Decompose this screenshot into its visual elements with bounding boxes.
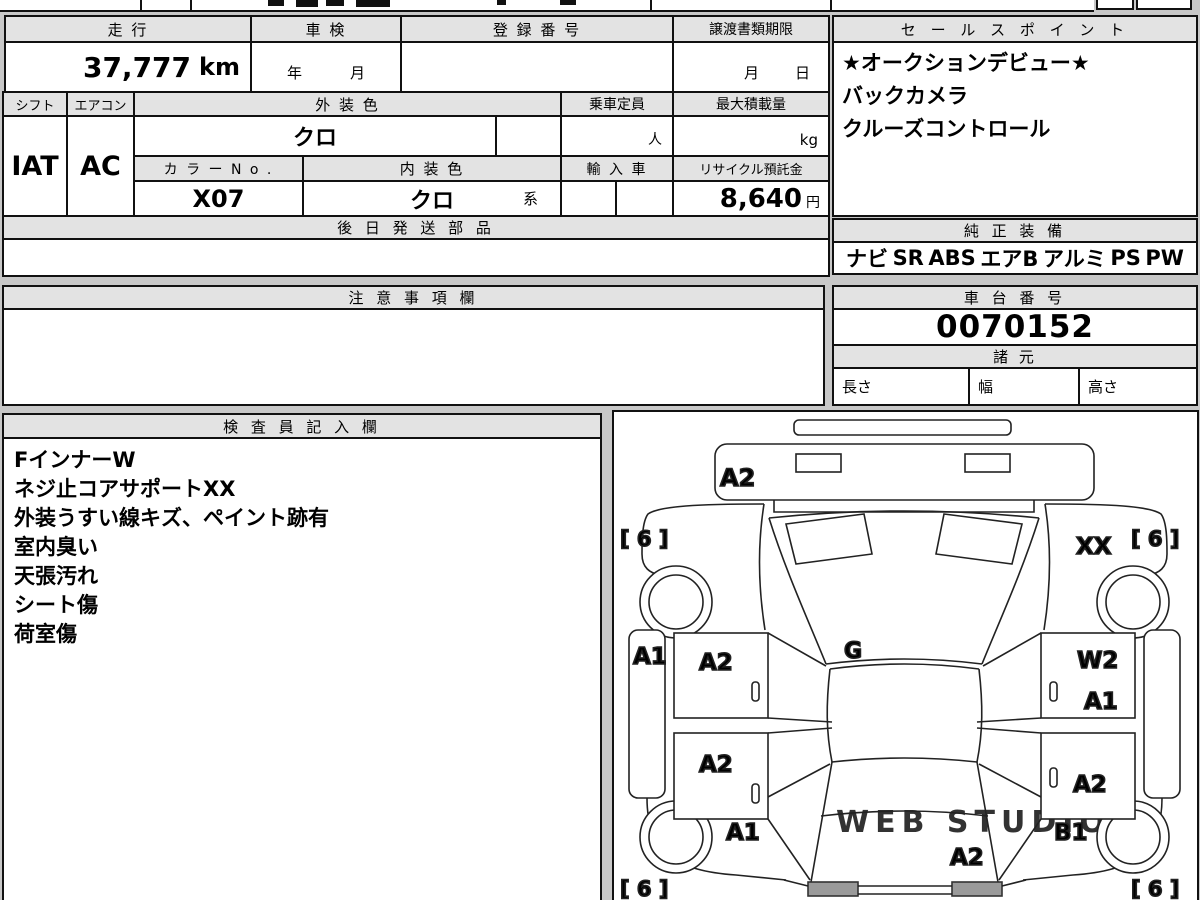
- interior-color-suffix: 系: [523, 188, 538, 209]
- clipped-divider: [190, 0, 192, 10]
- import-header: 輸 入 車: [560, 155, 674, 182]
- front-right-fender-inner: [1044, 504, 1049, 630]
- clipped-divider: [650, 0, 652, 10]
- wiper-left: [786, 514, 872, 564]
- transfer-value-cell: 月 日: [672, 41, 830, 93]
- clipped-text-fragment: [560, 0, 576, 5]
- transfer-month-label: 月: [744, 62, 759, 83]
- right-front-door-lower-label: A1: [1084, 689, 1118, 715]
- car-diagram-box: WEB STUDIO: [612, 410, 1199, 900]
- mileage-value-cell: 37,777 km: [4, 41, 252, 93]
- inspector-line: 室内臭い: [14, 533, 590, 562]
- clipped-divider: [830, 0, 832, 10]
- inspector-line: 外装うすい線キズ、ペイント跡有: [14, 504, 590, 533]
- front-bumper-detail-left: [796, 454, 841, 472]
- interior-color-value: クロ: [410, 183, 454, 215]
- left-side-strip-label: A1: [633, 644, 667, 670]
- clipped-text-fragment: [268, 0, 284, 6]
- capacity-unit: 人: [648, 129, 662, 149]
- inspection-month-label: 月: [350, 62, 365, 83]
- wiper-right: [936, 514, 1022, 564]
- sales-points-header: セ ー ル ス ポ イ ン ト: [832, 15, 1198, 43]
- sales-point-item: ★オークションデビュー★: [842, 47, 1188, 80]
- front-left-fender-inner: [760, 504, 765, 630]
- front-bumper: [715, 444, 1094, 500]
- import-cell-2: [615, 180, 674, 217]
- windshield-label: G: [844, 639, 862, 664]
- max-load-header: 最大積載量: [672, 91, 830, 117]
- specs-header: 諸 元: [832, 344, 1198, 369]
- exterior-color-header: 外 装 色: [133, 91, 562, 117]
- left-rear-door-label: A2: [699, 752, 733, 778]
- color-no-value: X07: [133, 180, 304, 217]
- capacity-value-cell: 人: [560, 115, 674, 157]
- b-pillar-band: [768, 718, 1041, 733]
- later-parts-header: 後 日 発 送 部 品: [2, 215, 830, 240]
- rear-left-tire-label: [ 6 ]: [620, 877, 668, 900]
- sales-point-item: バックカメラ: [842, 80, 1188, 113]
- front-left-tire-label: [ 6 ]: [620, 527, 668, 551]
- left-front-door-label: A2: [699, 650, 733, 676]
- inspector-line: 天張汚れ: [14, 562, 590, 591]
- recycle-value-cell: 8,640 円: [672, 180, 830, 217]
- inspector-body: FインナーW ネジ止コアサポートXX 外装うすい線キズ、ペイント跡有 室内臭い …: [2, 437, 602, 900]
- inspector-header: 検 査 員 記 入 欄: [2, 413, 602, 439]
- genuine-equipment-body: ナビ SR ABS エアB アルミ PS PW: [832, 241, 1198, 275]
- clipped-divider: [140, 0, 142, 10]
- clipped-cell: [1136, 0, 1192, 10]
- interior-color-header: 内 装 色: [302, 155, 562, 182]
- right-side-strip: [1144, 630, 1180, 798]
- aircon-header: エアコン: [66, 91, 135, 117]
- aircon-value: AC: [66, 115, 135, 217]
- color-no-header: カ ラ ー N o .: [133, 155, 304, 182]
- chassis-header: 車 台 番 号: [832, 285, 1198, 310]
- rear-right-tire-label: [ 6 ]: [1131, 877, 1179, 900]
- rear-gate-label: A2: [950, 845, 984, 871]
- front-right-wheel: [1097, 566, 1169, 638]
- rear-light-right: [952, 882, 1002, 896]
- equipment-item: アルミ: [1043, 243, 1106, 273]
- later-parts-value-cell: [2, 238, 830, 277]
- rear-window-top-arc: [832, 758, 977, 762]
- inspector-line: 荷室傷: [14, 620, 590, 649]
- front-right-fender-label: XX: [1076, 534, 1112, 560]
- capacity-header: 乗車定員: [560, 91, 674, 117]
- rear-left-fender-label: A1: [726, 820, 760, 846]
- windshield-right: [982, 518, 1039, 664]
- shift-value: IAT: [2, 115, 68, 217]
- rear-light-left: [808, 882, 858, 896]
- roof-right-edge: [977, 669, 982, 762]
- shift-header: シフト: [2, 91, 68, 117]
- right-rear-door-label: A2: [1073, 772, 1107, 798]
- transfer-deadline-header: 譲渡書類期限: [672, 15, 830, 43]
- spec-length-cell: 長さ: [832, 367, 970, 406]
- equipment-item: エアB: [980, 243, 1038, 273]
- notes-body: [2, 308, 825, 406]
- front-left-wheel: [640, 566, 712, 638]
- mileage-unit: km: [199, 53, 240, 81]
- clipped-cell: [1096, 0, 1134, 10]
- front-bumper-label: A2: [720, 464, 755, 492]
- notes-header: 注 意 事 項 欄: [2, 285, 825, 310]
- equipment-item: ナビ: [846, 243, 888, 273]
- max-load-value-cell: kg: [672, 115, 830, 157]
- roof-front-arc: [830, 664, 979, 669]
- spec-height-cell: 高さ: [1078, 367, 1198, 406]
- mileage-value: 37,777: [83, 51, 191, 84]
- mileage-header: 走 行: [4, 15, 252, 43]
- genuine-equipment-header: 純 正 装 備: [832, 218, 1198, 243]
- inspection-header: 車 検: [250, 15, 402, 43]
- spec-width-cell: 幅: [968, 367, 1080, 406]
- registration-value-cell: [400, 41, 674, 93]
- car-diagram: WEB STUDIO: [614, 412, 1197, 900]
- max-load-unit: kg: [800, 131, 818, 149]
- right-front-door-upper-label: W2: [1077, 648, 1118, 674]
- sales-points-body: ★オークションデビュー★ バックカメラ クルーズコントロール: [832, 41, 1198, 217]
- a-pillar-lines: [768, 633, 1041, 666]
- sales-point-item: クルーズコントロール: [842, 113, 1188, 146]
- equipment-item: SR: [893, 246, 924, 270]
- exterior-color-value: クロ: [133, 115, 497, 157]
- front-bumper-detail-right: [965, 454, 1010, 472]
- clipped-row-band: [0, 0, 1094, 12]
- windshield-left: [769, 518, 826, 664]
- front-plate-strip: [794, 420, 1011, 435]
- equipment-item: ABS: [928, 246, 975, 270]
- recycle-header: リサイクル預託金: [672, 155, 830, 182]
- registration-header: 登 録 番 号: [400, 15, 674, 43]
- equipment-item: PW: [1145, 246, 1184, 270]
- clipped-text-fragment: [296, 0, 318, 7]
- inspector-line: ネジ止コアサポートXX: [14, 475, 590, 504]
- transfer-day-label: 日: [795, 62, 810, 83]
- inspector-line: FインナーW: [14, 446, 590, 475]
- interior-color-value-cell: クロ 系: [302, 180, 562, 217]
- inspector-line: シート傷: [14, 591, 590, 620]
- equipment-item: PS: [1110, 246, 1141, 270]
- clipped-text-fragment: [326, 0, 344, 6]
- rear-right-fender-label: B1: [1054, 820, 1088, 846]
- auction-sheet: 走 行 車 検 登 録 番 号 譲渡書類期限 37,777 km 年 月 月 日…: [0, 0, 1200, 900]
- exterior-color-extra-cell: [495, 115, 562, 157]
- inspection-value-cell: 年 月: [250, 41, 402, 93]
- clipped-text-fragment: [356, 0, 390, 7]
- clipped-text-fragment: [497, 0, 506, 5]
- front-right-tire-label: [ 6 ]: [1131, 527, 1179, 551]
- chassis-value: 0070152: [832, 308, 1198, 346]
- import-cell-1: [560, 180, 617, 217]
- recycle-unit: 円: [806, 192, 820, 212]
- recycle-value: 8,640: [720, 184, 802, 214]
- roof-left-edge: [827, 669, 832, 762]
- inspection-year-label: 年: [287, 62, 302, 83]
